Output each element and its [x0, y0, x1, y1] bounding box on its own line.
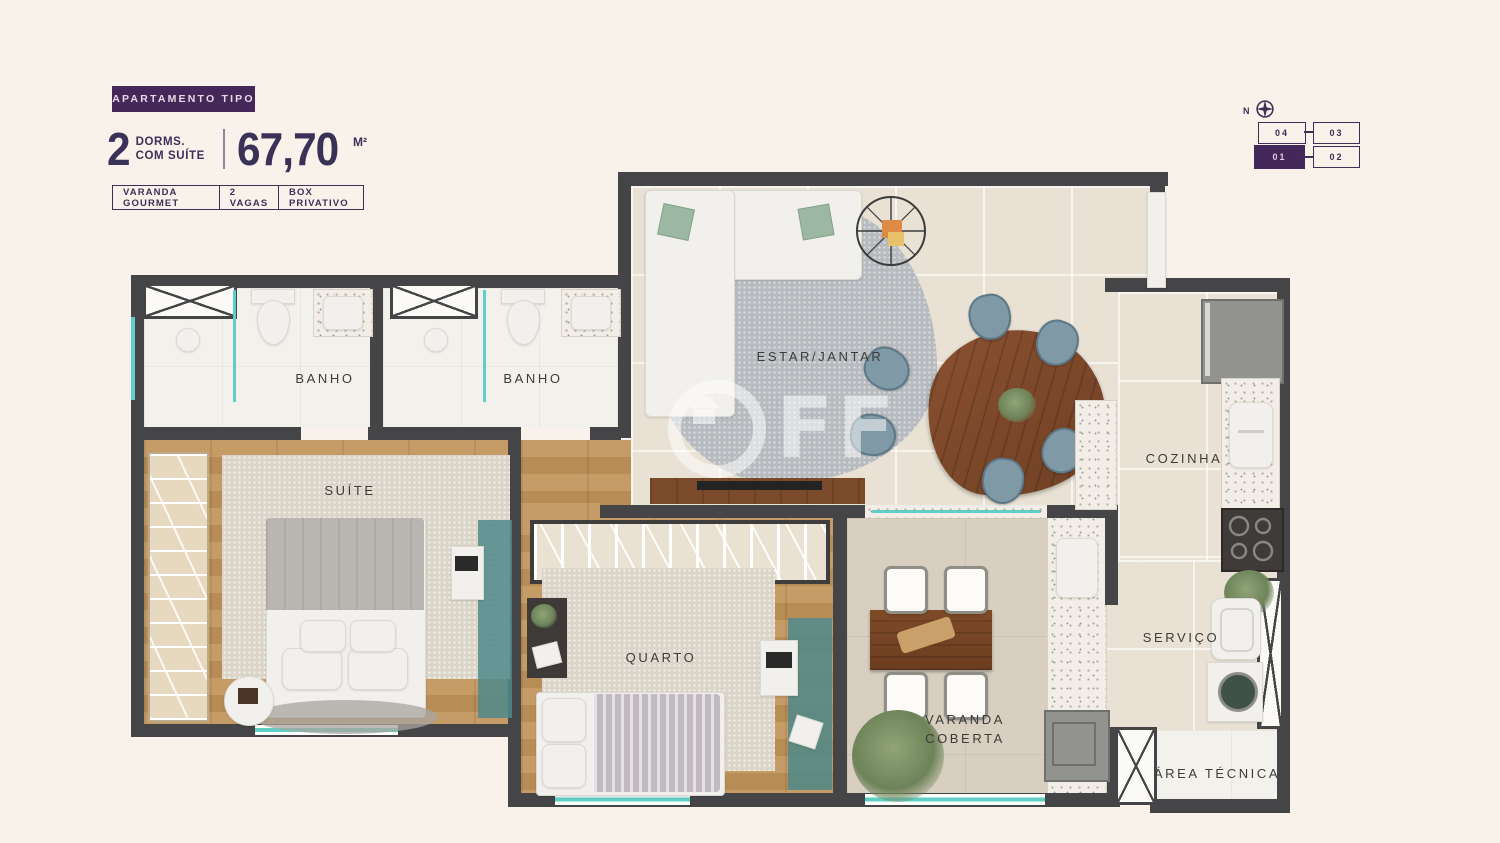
- label-cozinha: COZINHA: [1146, 450, 1223, 469]
- label-suite: SUÍTE: [324, 482, 375, 501]
- label-varanda-coberta: VARANDA COBERTA: [925, 711, 1005, 749]
- tv: [697, 481, 822, 490]
- keyplan-connector: [1303, 156, 1313, 158]
- quarto-pillow: [542, 698, 586, 742]
- fridge: [1201, 299, 1284, 384]
- laptop: [766, 652, 792, 668]
- keyplan-connector: [1304, 131, 1313, 133]
- label-banho-suite: BANHO: [295, 370, 354, 389]
- coffee-table: [856, 196, 926, 266]
- suite-pillow: [350, 620, 396, 652]
- area-unit: M²: [353, 135, 367, 149]
- wall: [131, 427, 301, 440]
- compass-icon: [1254, 98, 1276, 125]
- suite-desk: [451, 546, 484, 600]
- fridge-handle: [1205, 303, 1210, 376]
- nightstand-plant: [531, 604, 557, 628]
- living-cabinet: [1147, 192, 1166, 288]
- sink-basin: [571, 296, 611, 330]
- shower-glass: [483, 290, 486, 402]
- label-area-tecnica: ÁREA TÉCNICA: [1154, 765, 1280, 784]
- stats-divider: [223, 129, 225, 169]
- watermark-o-house-icon: [668, 380, 766, 478]
- quarto-blanket: [594, 694, 720, 792]
- watermark-letters: FF: [776, 395, 899, 462]
- table-plant: [998, 388, 1036, 422]
- grill-door: [1052, 722, 1096, 766]
- varanda-chair: [944, 566, 988, 614]
- label-banho-social: BANHO: [503, 370, 562, 389]
- laundry-tank-basin: [1220, 608, 1254, 652]
- chip-box-privativo: BOX PRIVATIVO: [278, 186, 363, 209]
- faucet: [1238, 430, 1264, 433]
- watermark: FF: [668, 380, 899, 478]
- suite-pillow: [282, 648, 342, 690]
- keyplan-unit-02: 02: [1313, 146, 1360, 168]
- chip-varanda-gourmet: VARANDA GOURMET: [113, 186, 219, 209]
- shaft-x-icon: [390, 283, 478, 319]
- area-value: 67,70: [237, 126, 338, 172]
- keyplan-unit-03: 03: [1313, 122, 1360, 144]
- wall: [847, 505, 865, 518]
- shaft-x-icon: [143, 283, 237, 319]
- suite-bed-blanket: [266, 518, 424, 610]
- suite-pillow: [348, 648, 408, 690]
- shower-drain: [176, 328, 200, 352]
- wall: [368, 427, 521, 440]
- wall: [1105, 278, 1290, 292]
- varanda-chair: [884, 566, 928, 614]
- kitchen-peninsula: [1075, 400, 1117, 510]
- dorms-label: DORMS. COM SUÍTE: [136, 135, 205, 164]
- sofa-pillow: [797, 203, 834, 240]
- shower-drain: [424, 328, 448, 352]
- keyplan-unit-01: 01: [1254, 145, 1305, 169]
- label-quarto: QUARTO: [626, 649, 697, 668]
- varanda-sink: [1056, 538, 1098, 598]
- wall: [1150, 799, 1290, 813]
- feature-chips: VARANDA GOURMET 2 VAGAS BOX PRIVATIVO: [112, 185, 364, 210]
- suite-pillow: [300, 620, 346, 652]
- shower-glass: [233, 290, 236, 402]
- wall: [833, 505, 847, 807]
- shaft-x-icon: [1115, 727, 1157, 805]
- north-label: N: [1243, 106, 1250, 116]
- window-banho: [131, 317, 135, 400]
- laptop: [455, 556, 478, 571]
- wall: [618, 172, 1168, 186]
- plan-type-badge: APARTAMENTO TIPO: [112, 86, 255, 112]
- wall: [1105, 505, 1118, 605]
- side-table-tray: [238, 688, 258, 704]
- chip-vagas: 2 VAGAS: [219, 186, 278, 209]
- quarto-desk: [760, 640, 798, 696]
- washer-door: [1218, 672, 1258, 712]
- sink-basin: [323, 296, 363, 330]
- wall: [600, 505, 848, 518]
- apartment-floorplan-page: APARTAMENTO TIPO 2 DORMS. COM SUÍTE 67,7…: [0, 0, 1500, 843]
- suite-foot-rug: [252, 700, 438, 734]
- quarto-pillow: [542, 744, 586, 788]
- floor-hall: [521, 440, 631, 508]
- plan-stats: 2 DORMS. COM SUÍTE 67,70 M²: [107, 124, 367, 174]
- keyplan-unit-04: 04: [1258, 122, 1306, 144]
- label-servico: SERVIÇO: [1143, 629, 1219, 648]
- glass-door-varanda: [872, 510, 1040, 513]
- suite-wardrobe: [148, 452, 209, 722]
- sofa-pillow: [657, 203, 695, 241]
- dorms-number: 2: [107, 126, 130, 172]
- wall: [590, 427, 621, 440]
- label-estar-jantar: ESTAR/JANTAR: [757, 348, 884, 367]
- stove: [1221, 508, 1284, 572]
- kitchen-sink: [1229, 402, 1273, 468]
